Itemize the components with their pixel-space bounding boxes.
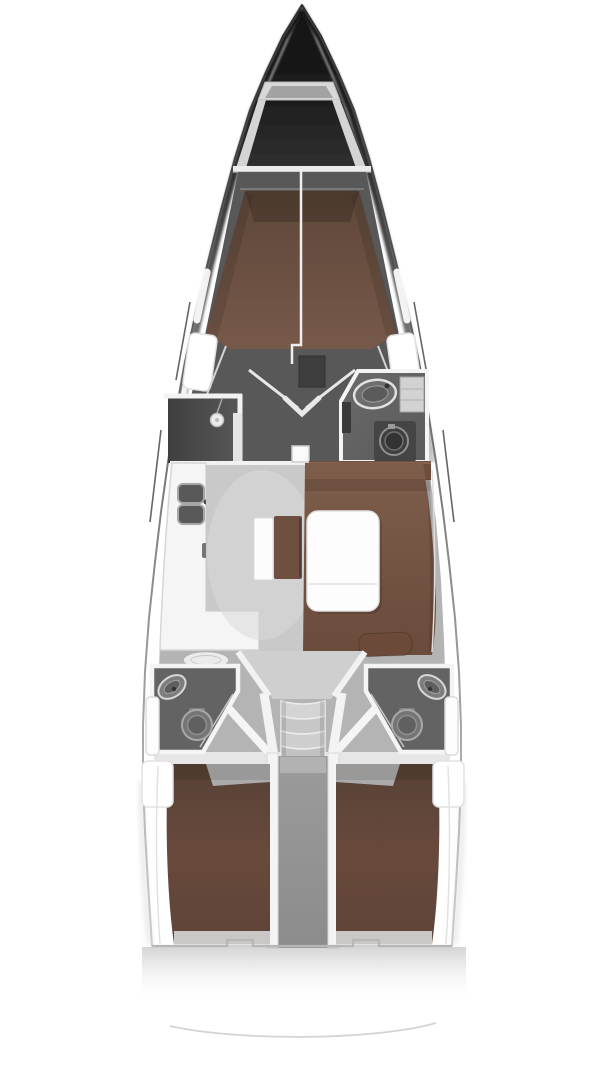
salon-table xyxy=(307,511,379,611)
forward-head-group xyxy=(341,371,427,462)
head-counter-edge xyxy=(342,402,351,433)
stair-shadow-right xyxy=(320,701,325,761)
aft-bed-starboard xyxy=(336,764,439,944)
bench-white xyxy=(254,518,273,580)
aft-cabin-starboard-group xyxy=(336,761,464,944)
aft-basin-starboard-faucet xyxy=(428,687,432,691)
stair-step-1 xyxy=(281,701,325,719)
yacht-floorplan-page xyxy=(0,0,608,1080)
aft-head-port-window xyxy=(146,697,159,755)
shower-door xyxy=(233,413,242,461)
transom-group xyxy=(142,931,466,1037)
toilet-port-bowl xyxy=(188,716,207,735)
washer-panel xyxy=(388,424,395,429)
transom-strip-port xyxy=(174,931,270,945)
shower-room xyxy=(168,396,240,463)
washer-drum-inner xyxy=(385,432,403,450)
anchor-locker-inner xyxy=(265,86,333,98)
head-cabinet xyxy=(400,377,424,412)
floor-hatch xyxy=(299,356,325,387)
settee-cushion xyxy=(359,632,413,657)
galley-sink-2 xyxy=(178,505,204,524)
shower-head-dot xyxy=(215,418,219,422)
aft-head-starboard-window xyxy=(445,697,458,755)
aft-bed-port-shadow xyxy=(168,764,270,780)
transom-strip-starboard xyxy=(336,931,432,945)
aft-bed-starboard-shadow xyxy=(336,764,438,780)
engine-box xyxy=(278,756,328,948)
bench-brown xyxy=(274,516,302,579)
basin-faucet xyxy=(385,384,390,389)
rub-rail-port-lower xyxy=(150,430,161,522)
swim-platform-arc xyxy=(170,1023,436,1037)
engine-box-top xyxy=(280,757,326,773)
toilet-starboard-bowl xyxy=(398,716,417,735)
rub-rail-starboard-lower xyxy=(443,430,454,522)
settee-back-shadow xyxy=(305,479,431,491)
yacht-floorplan-diagram xyxy=(0,0,608,1080)
stair-shadow-left xyxy=(281,701,286,761)
galley-sink-1 xyxy=(178,484,204,503)
stair-step-2 xyxy=(281,716,325,734)
stair-step-3 xyxy=(281,731,325,749)
aft-basin-port-faucet xyxy=(172,687,176,691)
salon-door xyxy=(292,446,309,462)
aft-cabin-port-group xyxy=(142,761,270,944)
forward-shower-group xyxy=(164,394,242,463)
transom-fade xyxy=(142,947,466,1005)
aft-bed-port xyxy=(167,764,270,944)
